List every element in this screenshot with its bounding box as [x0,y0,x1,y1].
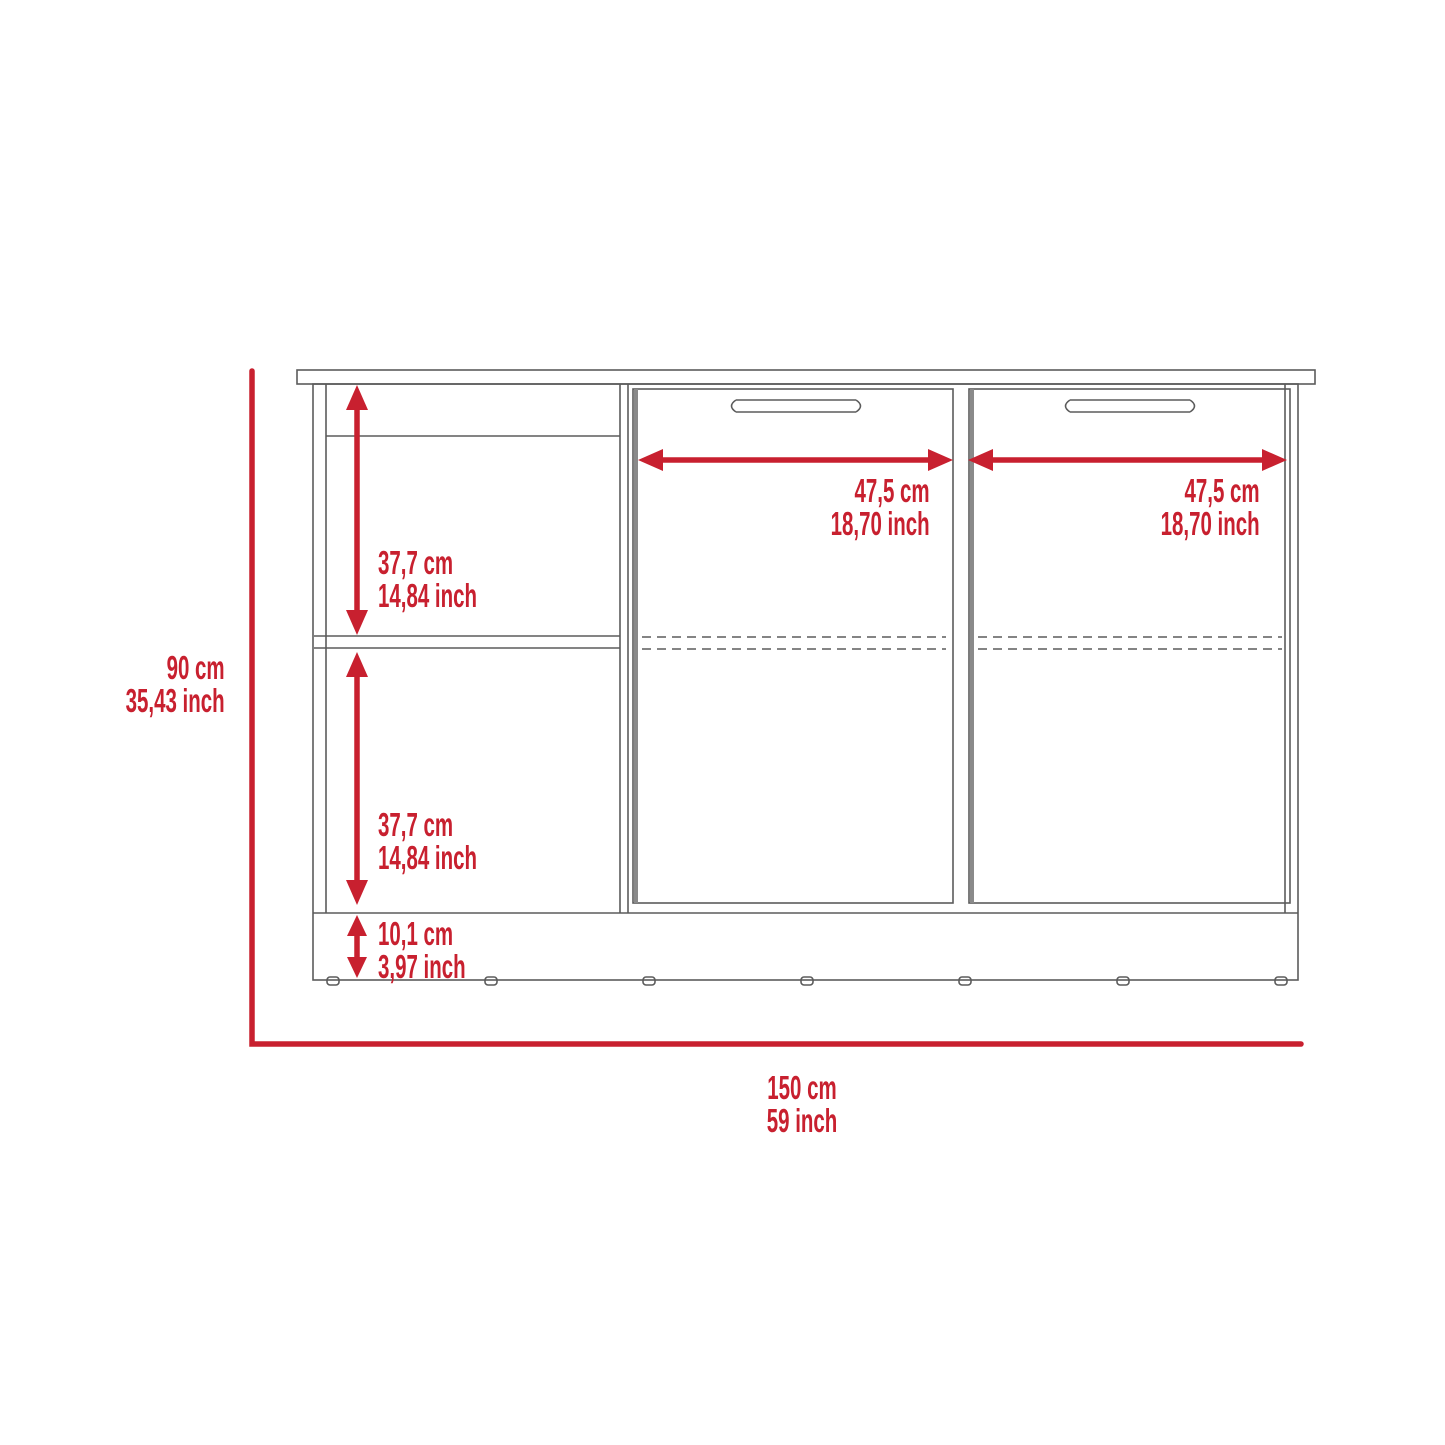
right-door [969,389,1290,903]
cm-value: 37,7 cm [378,546,477,579]
dimension-label-base-height: 10,1 cm 3,97 inch [378,917,466,983]
dimension-label-upper-compartment: 37,7 cm 14,84 inch [378,546,477,612]
cm-value: 10,1 cm [378,917,466,950]
cm-value: 47,5 cm [831,474,930,507]
cabinet-dimension-diagram: 90 cm 35,43 inch 150 cm 59 inch 37,7 cm … [0,0,1445,1445]
right-door-handle-icon [1066,400,1195,412]
inch-value: 35,43 inch [126,684,225,717]
dimension-label-left-door-width: 47,5 cm 18,70 inch [831,474,930,540]
base-height-arrow [347,915,367,978]
left-door-width-arrow [638,449,953,471]
cabinet-carcass [313,384,1298,980]
dimension-label-right-door-width: 47,5 cm 18,70 inch [1161,474,1260,540]
hidden-shelf-dashed-lines [642,637,1282,649]
cm-value: 47,5 cm [1161,474,1260,507]
inch-value: 18,70 inch [1161,507,1260,540]
dimension-label-lower-compartment: 37,7 cm 14,84 inch [378,808,477,874]
dimension-label-overall-height: 90 cm 35,43 inch [126,651,225,717]
cabinet-line-drawing [0,0,1445,1445]
cm-value: 90 cm [126,651,225,684]
cm-value: 150 cm [767,1071,838,1104]
cm-value: 37,7 cm [378,808,477,841]
lower-compartment-arrow [346,652,368,905]
dimension-label-overall-width: 150 cm 59 inch [767,1071,838,1137]
left-door-handle-icon [732,400,861,412]
inch-value: 14,84 inch [378,841,477,874]
inch-value: 59 inch [767,1104,838,1137]
right-door-width-arrow [968,449,1287,471]
upper-compartment-arrow [346,385,368,635]
inch-value: 18,70 inch [831,507,930,540]
left-door [633,389,953,903]
inch-value: 14,84 inch [378,579,477,612]
inch-value: 3,97 inch [378,950,466,983]
cabinet-top-panel [297,370,1315,384]
cabinet-feet [327,977,1287,985]
